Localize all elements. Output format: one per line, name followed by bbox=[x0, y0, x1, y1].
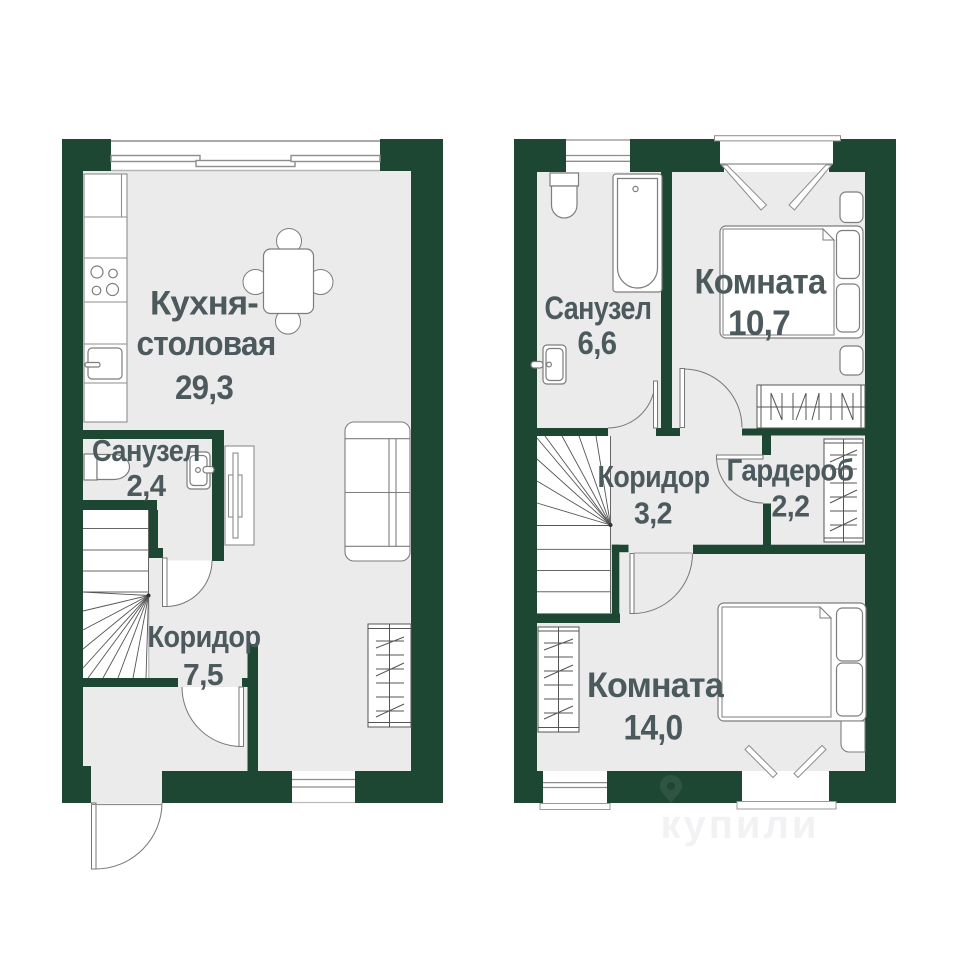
svg-text:столовая: столовая bbox=[137, 325, 276, 363]
svg-text:Коридор: Коридор bbox=[148, 619, 261, 654]
svg-text:Кухня-: Кухня- bbox=[150, 285, 258, 323]
svg-text:Комната: Комната bbox=[587, 666, 724, 705]
svg-text:Коридор: Коридор bbox=[598, 459, 710, 494]
svg-text:2,4: 2,4 bbox=[127, 468, 167, 503]
svg-text:2,2: 2,2 bbox=[772, 489, 810, 524]
svg-text:3,2: 3,2 bbox=[634, 496, 672, 531]
svg-text:10,7: 10,7 bbox=[728, 304, 790, 343]
svg-text:7,5: 7,5 bbox=[183, 657, 223, 692]
svg-text:Гардероб: Гардероб bbox=[727, 453, 854, 488]
svg-text:Комната: Комната bbox=[695, 263, 827, 302]
svg-text:6,6: 6,6 bbox=[578, 325, 617, 361]
svg-text:купили: купили bbox=[660, 803, 819, 847]
svg-text:14,0: 14,0 bbox=[624, 709, 683, 748]
svg-text:Санузел: Санузел bbox=[92, 433, 200, 468]
svg-text:Санузел: Санузел bbox=[545, 290, 652, 326]
svg-text:29,3: 29,3 bbox=[175, 369, 233, 407]
